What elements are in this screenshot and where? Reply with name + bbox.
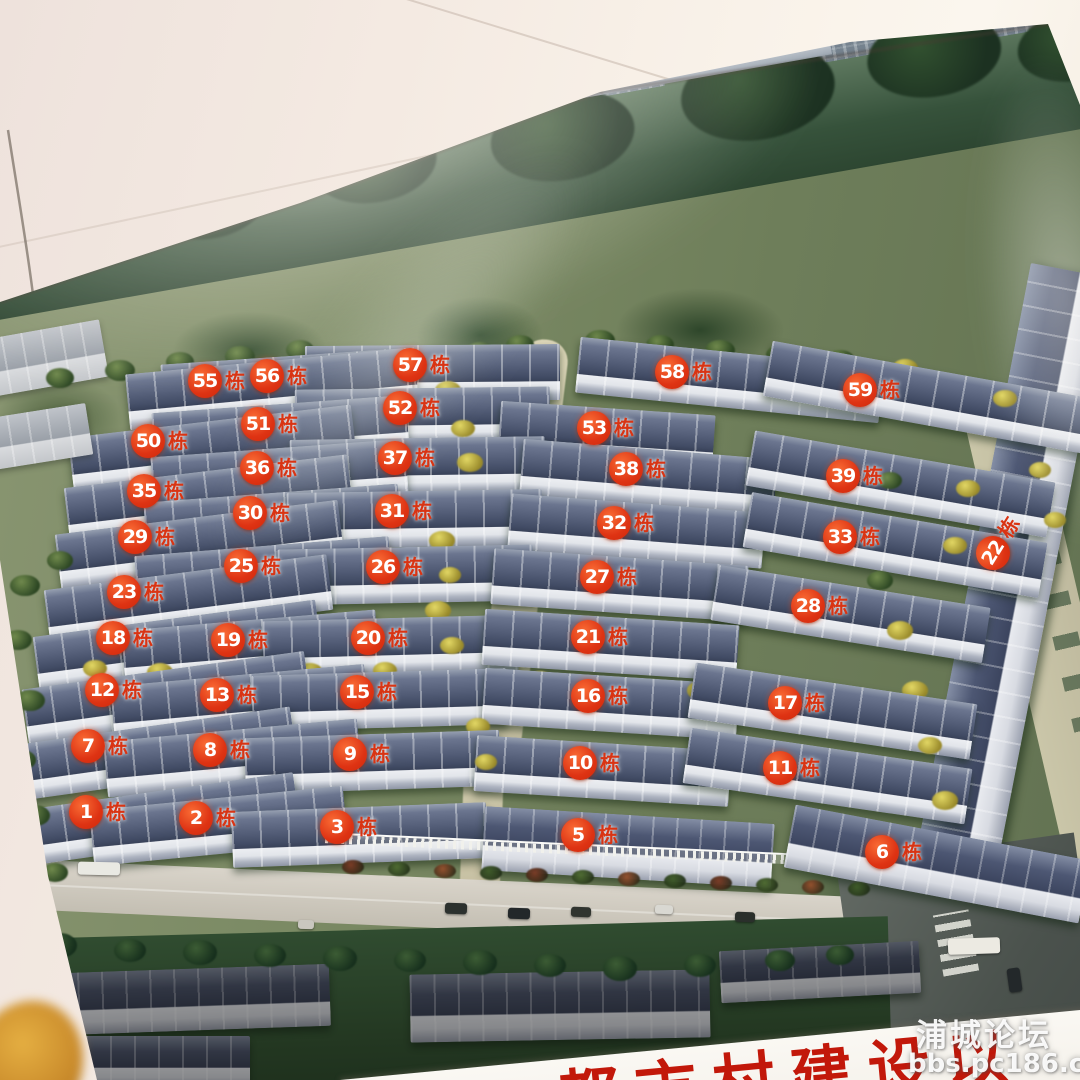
badge-suffix: 栋: [370, 744, 390, 764]
building-badge-32: 32栋: [597, 506, 631, 540]
watermark-forum-name: 浦城论坛: [916, 1020, 1052, 1053]
badge-circle: 29: [118, 520, 152, 554]
badge-number: 17: [773, 694, 797, 713]
building-badge-29: 29栋: [118, 520, 152, 554]
building-badge-26: 26栋: [366, 550, 400, 584]
badge-circle: 8: [193, 733, 227, 767]
building-badge-31: 31栋: [375, 494, 409, 528]
building-badge-12: 12栋: [85, 673, 119, 707]
badge-circle: 1: [69, 795, 103, 829]
badge-suffix: 栋: [164, 481, 184, 501]
building-badge-21: 21栋: [571, 620, 605, 654]
building-badge-6: 6栋: [865, 835, 899, 869]
badge-suffix: 栋: [430, 355, 450, 375]
badge-circle: 17: [768, 686, 802, 720]
building-badge-2: 2栋: [179, 801, 213, 835]
badge-circle: 28: [791, 589, 825, 623]
badge-number: 36: [245, 459, 269, 478]
building-badge-30: 30栋: [233, 496, 267, 530]
badge-suffix: 栋: [225, 371, 245, 391]
building-badge-58: 58栋: [655, 355, 689, 389]
badge-number: 10: [568, 754, 592, 773]
badge-number: 23: [112, 583, 136, 602]
badge-number: 19: [216, 631, 240, 650]
badge-circle: 51: [241, 407, 275, 441]
badge-circle: 9: [333, 737, 367, 771]
building-badge-37: 37栋: [378, 441, 412, 475]
badge-suffix: 栋: [608, 627, 628, 647]
badge-number: 32: [602, 514, 626, 533]
badge-number: 56: [255, 367, 279, 386]
building-badge-9: 9栋: [333, 737, 367, 771]
building-badge-1: 1栋: [69, 795, 103, 829]
badge-number: 28: [796, 597, 820, 616]
building-badge-38: 38栋: [609, 452, 643, 486]
badge-number: 21: [576, 628, 600, 647]
badge-suffix: 栋: [108, 736, 128, 756]
building-badge-23: 23栋: [107, 575, 141, 609]
badge-circle: 13: [200, 678, 234, 712]
badge-circle: 37: [378, 441, 412, 475]
badge-suffix: 栋: [646, 459, 666, 479]
badge-suffix: 栋: [863, 466, 883, 486]
badge-suffix: 栋: [598, 825, 618, 845]
badge-suffix: 栋: [133, 628, 153, 648]
badge-circle: 26: [366, 550, 400, 584]
badge-suffix: 栋: [278, 414, 298, 434]
badge-number: 26: [371, 558, 395, 577]
badge-circle: 23: [107, 575, 141, 609]
badge-suffix: 栋: [880, 380, 900, 400]
badge-circle: 18: [96, 621, 130, 655]
building-badge-17: 17栋: [768, 686, 802, 720]
badge-circle: 16: [571, 679, 605, 713]
badge-suffix: 栋: [216, 808, 236, 828]
building-badge-10: 10栋: [563, 746, 597, 780]
badge-circle: 12: [85, 673, 119, 707]
badge-number: 55: [193, 372, 217, 391]
building-badge-11: 11栋: [763, 751, 797, 785]
badge-circle: 39: [826, 459, 860, 493]
building-badge-28: 28栋: [791, 589, 825, 623]
building-badge-55: 55栋: [188, 364, 222, 398]
badge-number: 30: [238, 504, 262, 523]
badge-suffix: 栋: [634, 513, 654, 533]
badge-suffix: 栋: [106, 802, 126, 822]
badge-circle: 25: [224, 549, 258, 583]
badge-circle: 2: [179, 801, 213, 835]
badge-circle: 55: [188, 364, 222, 398]
badge-number: 38: [614, 460, 638, 479]
badge-circle: 11: [763, 751, 797, 785]
building-badge-25: 25栋: [224, 549, 258, 583]
badge-circle: 3: [320, 810, 354, 844]
badge-circle: 7: [71, 729, 105, 763]
badge-circle: 32: [597, 506, 631, 540]
building-badge-59: 59栋: [843, 373, 877, 407]
badge-suffix: 栋: [122, 680, 142, 700]
photo-of-site-plan-poster: 1栋2栋3栋5栋6栋7栋8栋9栋10栋11栋12栋13栋15栋16栋17栋18栋…: [0, 0, 1080, 1080]
badge-number: 13: [205, 686, 229, 705]
building-badge-52: 52栋: [383, 391, 417, 425]
building-badge-16: 16栋: [571, 679, 605, 713]
badge-number: 1: [80, 803, 92, 822]
badge-circle: 6: [865, 835, 899, 869]
badge-number: 57: [398, 356, 422, 375]
badge-number: 31: [380, 502, 404, 521]
badge-suffix: 栋: [828, 596, 848, 616]
badge-circle: 58: [655, 355, 689, 389]
badge-suffix: 栋: [614, 418, 634, 438]
badge-number: 18: [101, 629, 125, 648]
badge-number: 33: [828, 528, 852, 547]
building-badge-56: 56栋: [250, 359, 284, 393]
badge-suffix: 栋: [412, 501, 432, 521]
building-badge-20: 20栋: [351, 621, 385, 655]
building-badge-53: 53栋: [577, 411, 611, 445]
badge-circle: 56: [250, 359, 284, 393]
badge-circle: 38: [609, 452, 643, 486]
badge-suffix: 栋: [800, 758, 820, 778]
badge-circle: 53: [577, 411, 611, 445]
badge-suffix: 栋: [261, 556, 281, 576]
badge-circle: 57: [393, 348, 427, 382]
badge-number: 59: [848, 381, 872, 400]
badge-number: 25: [229, 557, 253, 576]
badge-suffix: 栋: [270, 503, 290, 523]
badge-suffix: 栋: [144, 582, 164, 602]
badge-circle: 33: [823, 520, 857, 554]
building-badge-39: 39栋: [826, 459, 860, 493]
badge-suffix: 栋: [403, 557, 423, 577]
badge-number: 2: [190, 809, 202, 828]
badge-suffix: 栋: [388, 628, 408, 648]
badge-number: 7: [82, 737, 94, 756]
badge-circle: 27: [580, 560, 614, 594]
badge-number: 52: [388, 399, 412, 418]
badge-circle: 35: [127, 474, 161, 508]
badge-suffix: 栋: [692, 362, 712, 382]
badge-circle: 5: [561, 818, 595, 852]
badge-number: 8: [204, 741, 216, 760]
building-badge-33: 33栋: [823, 520, 857, 554]
building-badge-18: 18栋: [96, 621, 130, 655]
building-badge-50: 50栋: [131, 424, 165, 458]
badge-number: 12: [90, 681, 114, 700]
badge-circle: 30: [233, 496, 267, 530]
badge-suffix: 栋: [617, 567, 637, 587]
badge-number: 39: [831, 467, 855, 486]
badge-suffix: 栋: [600, 753, 620, 773]
badge-suffix: 栋: [168, 431, 188, 451]
building-badge-27: 27栋: [580, 560, 614, 594]
badge-circle: 20: [351, 621, 385, 655]
building-badge-7: 7栋: [71, 729, 105, 763]
badge-suffix: 栋: [420, 398, 440, 418]
badge-number: 15: [345, 683, 369, 702]
badge-circle: 19: [211, 623, 245, 657]
badge-circle: 21: [571, 620, 605, 654]
badge-number: 50: [136, 432, 160, 451]
badge-number: 11: [768, 759, 792, 778]
badge-suffix: 栋: [377, 682, 397, 702]
building-badge-13: 13栋: [200, 678, 234, 712]
badge-number: 20: [356, 629, 380, 648]
badge-suffix: 栋: [608, 686, 628, 706]
badge-circle: 36: [240, 451, 274, 485]
watermark-forum-url: bbs.pc186.com: [908, 1051, 1080, 1078]
building-badge-22: 22栋: [970, 530, 1017, 577]
building-badge-57: 57栋: [393, 348, 427, 382]
badge-number: 51: [246, 415, 270, 434]
badge-suffix: 栋: [248, 630, 268, 650]
building-badge-5: 5栋: [561, 818, 595, 852]
badge-circle: 10: [563, 746, 597, 780]
badge-suffix: 栋: [155, 527, 175, 547]
badge-suffix: 栋: [357, 817, 377, 837]
badge-suffix: 栋: [805, 693, 825, 713]
badge-number: 58: [660, 363, 684, 382]
badge-circle: 31: [375, 494, 409, 528]
badge-number: 35: [132, 482, 156, 501]
badge-number: 5: [572, 826, 584, 845]
badge-circle: 52: [383, 391, 417, 425]
badge-circle: 15: [340, 675, 374, 709]
badge-number: 29: [123, 528, 147, 547]
building-badge-35: 35栋: [127, 474, 161, 508]
badge-number: 27: [585, 568, 609, 587]
badge-number: 9: [344, 745, 356, 764]
badge-number: 3: [331, 818, 343, 837]
building-badge-3: 3栋: [320, 810, 354, 844]
badge-circle: 59: [843, 373, 877, 407]
badge-suffix: 栋: [860, 527, 880, 547]
badge-suffix: 栋: [287, 366, 307, 386]
building-badge-19: 19栋: [211, 623, 245, 657]
building-badge-51: 51栋: [241, 407, 275, 441]
badge-number: 16: [576, 687, 600, 706]
badge-number: 22: [978, 538, 1007, 569]
badge-circle: 50: [131, 424, 165, 458]
building-badge-15: 15栋: [340, 675, 374, 709]
building-badge-8: 8栋: [193, 733, 227, 767]
badge-suffix: 栋: [230, 740, 250, 760]
badge-number: 6: [876, 843, 888, 862]
building-badge-36: 36栋: [240, 451, 274, 485]
badge-number: 37: [383, 449, 407, 468]
badge-suffix: 栋: [277, 458, 297, 478]
badge-suffix: 栋: [237, 685, 257, 705]
badge-suffix: 栋: [902, 842, 922, 862]
badge-suffix: 栋: [415, 448, 435, 468]
badge-number: 53: [582, 419, 606, 438]
